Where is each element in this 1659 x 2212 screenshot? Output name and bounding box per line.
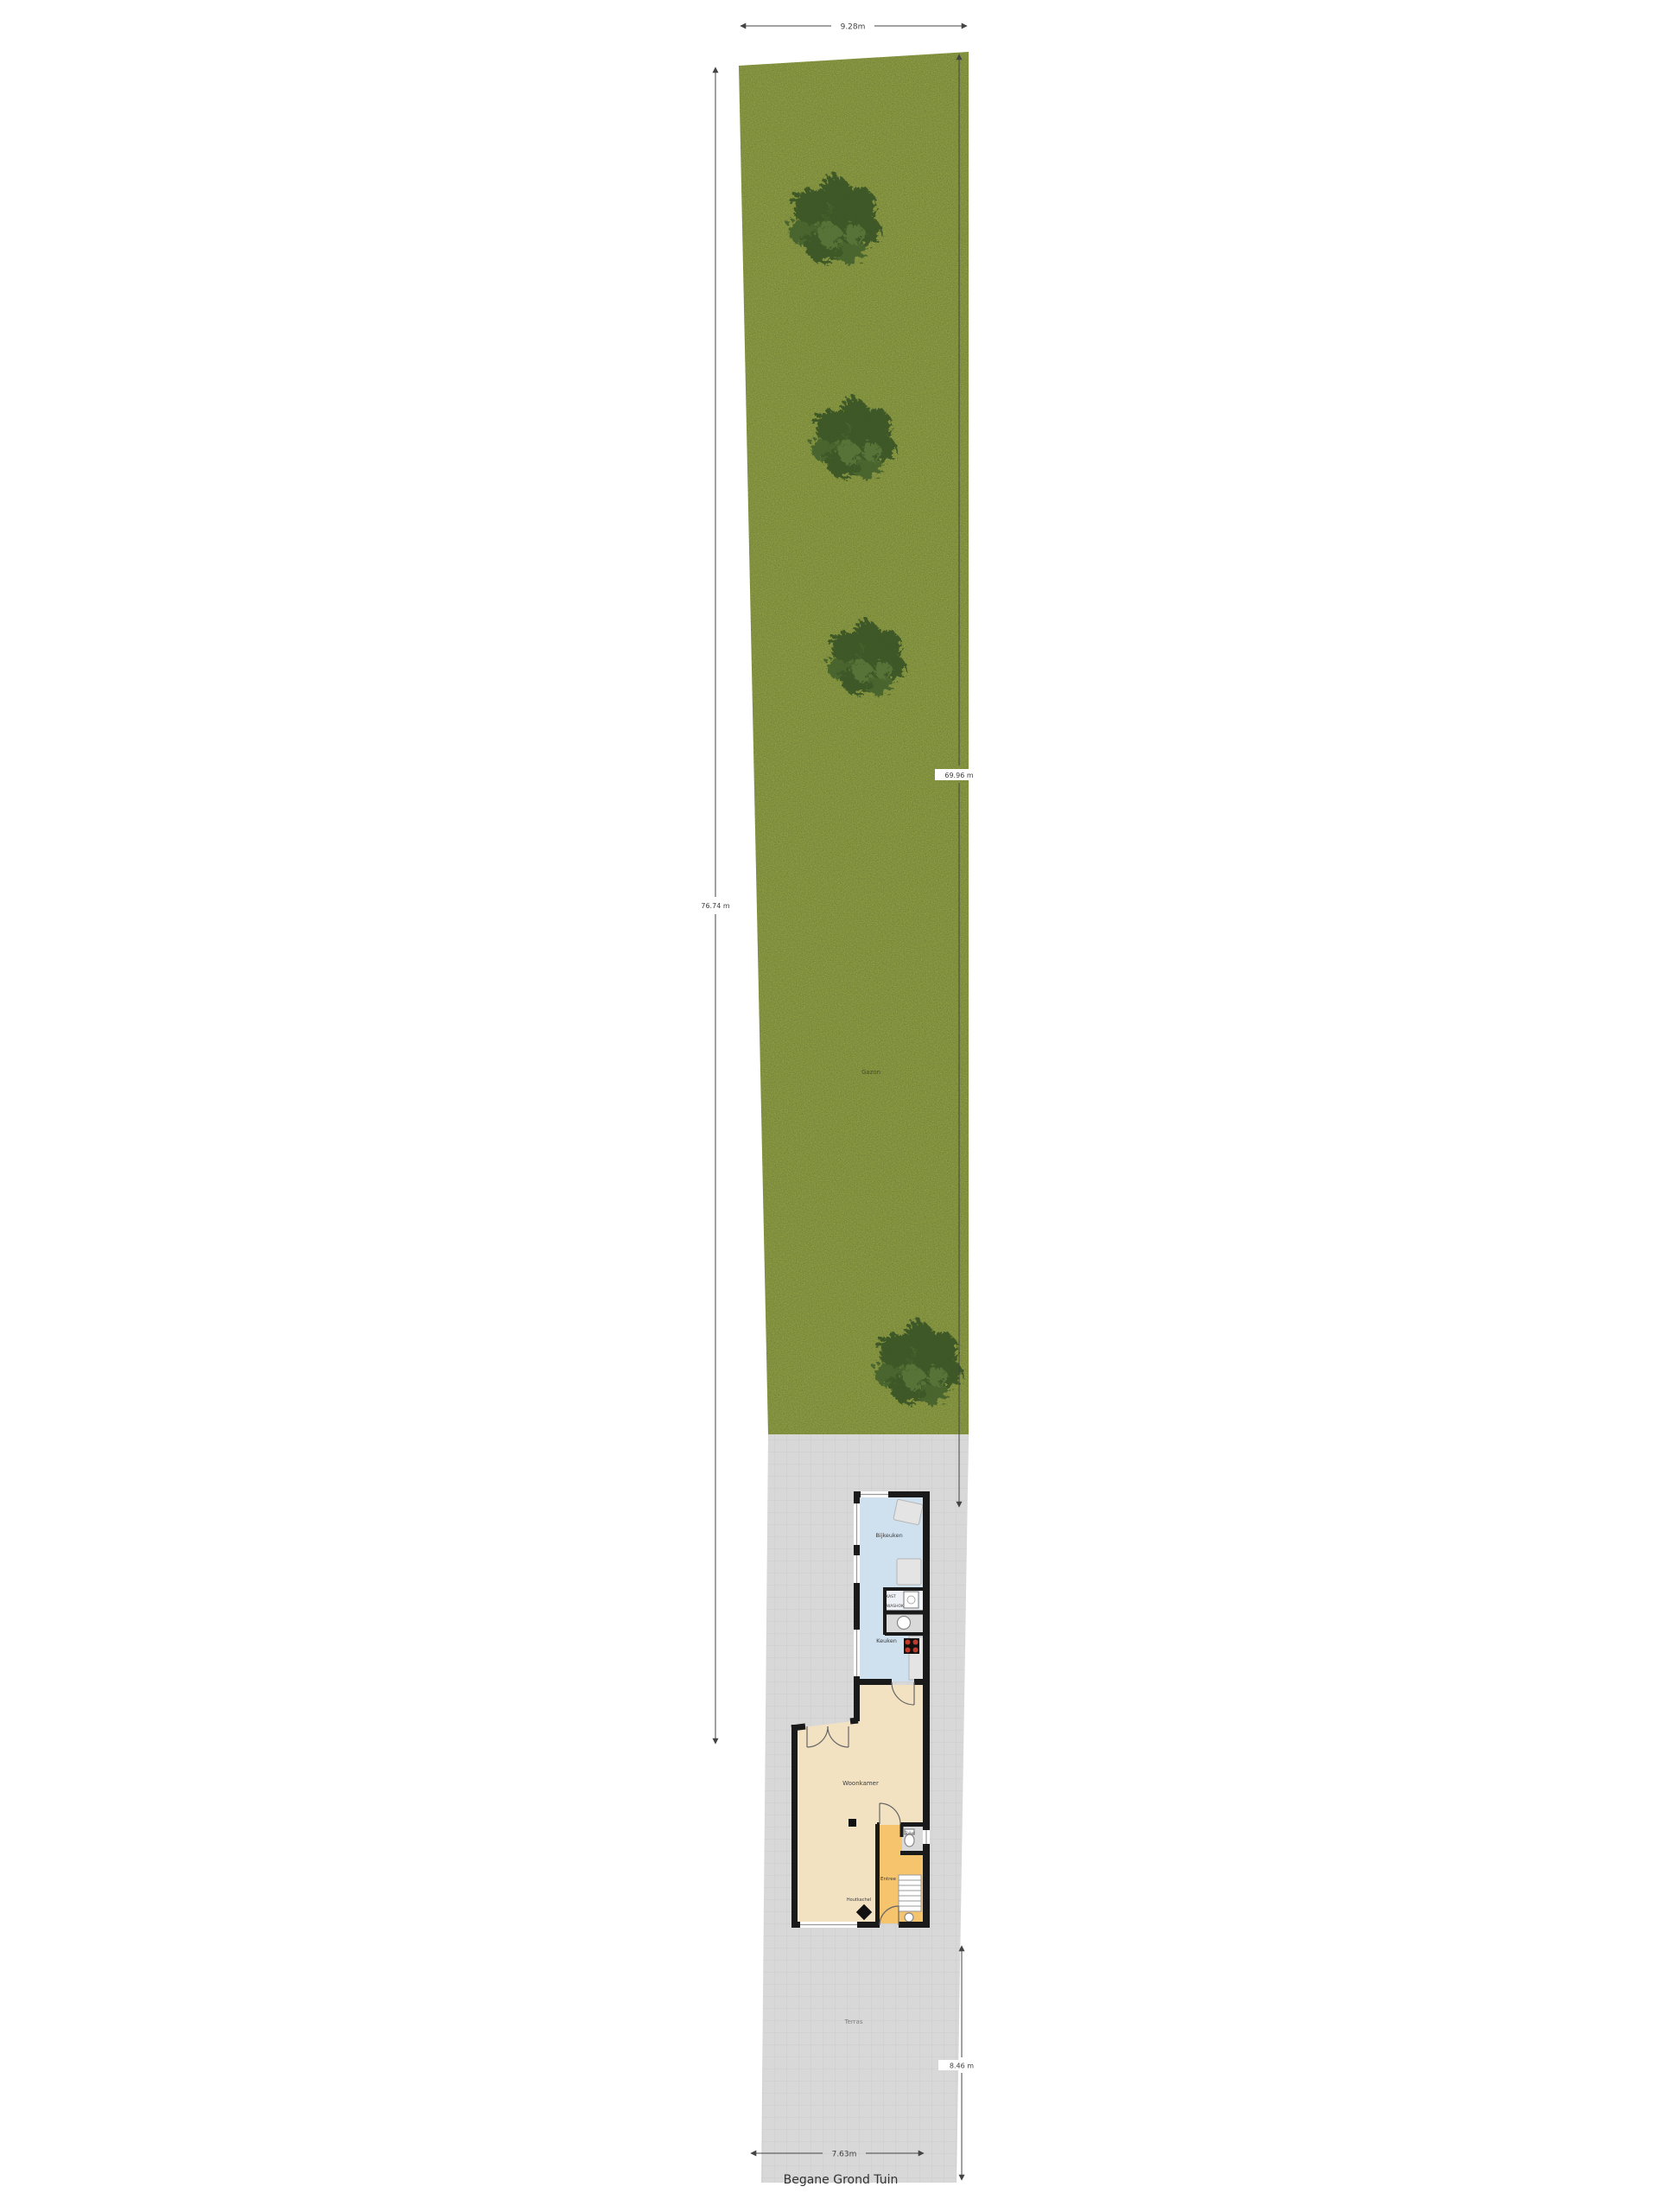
dimension-top-label: 9.28m <box>841 23 866 32</box>
page-title: Begane Grond Tuin <box>784 2173 899 2187</box>
room-label-closet: KAST <box>886 1594 896 1599</box>
room-label-hall: Entree <box>880 1877 897 1882</box>
dimension-left-label: 76.74 m <box>701 902 729 910</box>
site-plan: Bijkeuken KAST WASHOK Keuken Woonkamer H… <box>0 0 1659 2212</box>
hall-sink-icon <box>905 1913 913 1922</box>
column <box>849 1819 856 1827</box>
stairs <box>899 1875 921 1911</box>
room-label-living: Woonkamer <box>842 1780 879 1787</box>
cooktop-icon <box>904 1638 919 1654</box>
room-label-kitchen: Keuken <box>876 1637 897 1644</box>
room-label-laundry: WASHOK <box>887 1604 905 1609</box>
cabinet <box>897 1559 921 1585</box>
dimension-top: 9.28m <box>741 23 967 32</box>
grass-texture <box>739 52 969 1434</box>
room-label-stove: Houtkachel <box>847 1897 871 1903</box>
room-label-toilet: Toilet <box>904 1831 915 1836</box>
sink-icon <box>898 1617 911 1630</box>
washer-icon <box>904 1592 918 1608</box>
garden <box>739 52 969 1434</box>
garden-label: Gazon <box>861 1069 880 1076</box>
dimension-right-label: 69.96 m <box>944 772 973 779</box>
dimension-front-label: 8.46 m <box>950 2063 974 2070</box>
dimension-left: 76.74 m <box>701 67 729 1744</box>
room-label-utility: Bijkeuken <box>875 1532 902 1539</box>
paving-label: Terras <box>844 2018 863 2025</box>
dimension-bottom-label: 7.63m <box>832 2151 857 2159</box>
